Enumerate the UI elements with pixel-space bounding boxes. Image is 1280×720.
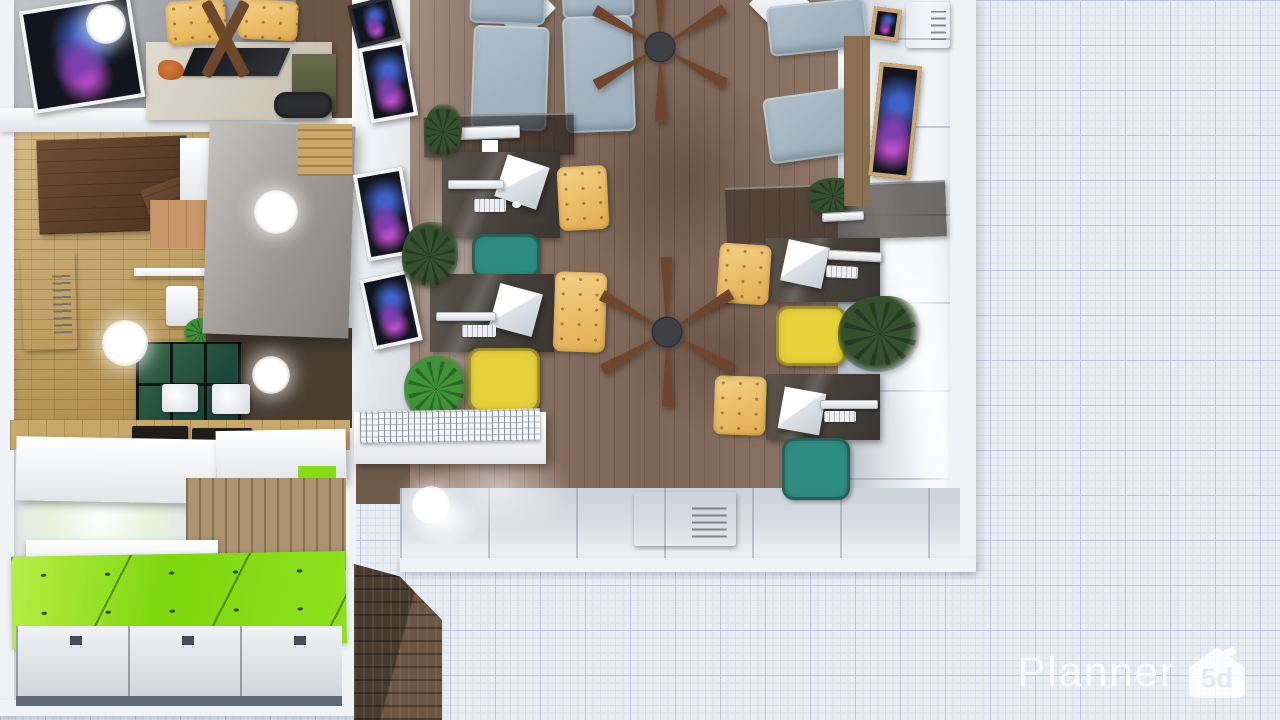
ac-unit[interactable] (906, 2, 950, 48)
glass-shelf (134, 268, 212, 276)
monitor[interactable] (448, 180, 504, 189)
keyboard[interactable] (824, 411, 856, 422)
ceiling-fan[interactable] (592, 257, 742, 407)
wall-picture[interactable] (358, 40, 418, 123)
ceiling-light (86, 4, 126, 44)
keyboard[interactable] (474, 199, 506, 212)
wall-picture[interactable] (347, 0, 400, 49)
wall-picture[interactable] (870, 6, 902, 42)
ceiling-light (412, 486, 450, 524)
palm-plant[interactable] (838, 296, 922, 372)
ceiling-light (252, 356, 290, 394)
wall-picture[interactable] (19, 0, 146, 114)
brand-wordmark: Planner (1017, 648, 1176, 696)
monitor[interactable] (458, 125, 520, 140)
locker-fronts[interactable] (16, 626, 342, 706)
badge-text: 5d (1201, 663, 1234, 694)
desk-chair[interactable] (274, 92, 332, 118)
office-chair[interactable] (782, 438, 850, 500)
planner-5d-house-badge: 5d (1186, 644, 1248, 700)
pc-tower[interactable] (780, 239, 830, 289)
ceiling-light (102, 320, 148, 366)
kitchen-board (150, 200, 208, 248)
furniture-layer (0, 0, 1280, 720)
planner5d-3d-viewport[interactable]: Planner 5d (0, 0, 1280, 720)
wood-slats (844, 36, 870, 206)
wood-chair[interactable] (556, 165, 609, 232)
monitor[interactable] (436, 312, 496, 321)
ac-unit[interactable] (20, 251, 77, 351)
wood-chair[interactable] (713, 375, 767, 436)
planner5d-watermark: Planner 5d (1017, 644, 1248, 700)
monitor[interactable] (820, 400, 878, 409)
wall-picture[interactable] (868, 62, 922, 180)
keyboard[interactable] (462, 325, 496, 337)
keyboard[interactable] (826, 265, 859, 279)
table-cross-legs[interactable] (176, 0, 272, 78)
ac-floor-unit[interactable] (634, 492, 736, 546)
bench-grate (360, 408, 541, 443)
wood-beam (298, 124, 352, 176)
mug[interactable] (162, 384, 198, 412)
mug[interactable] (212, 384, 250, 414)
mouse[interactable] (512, 201, 521, 208)
office-chair[interactable] (472, 234, 540, 278)
pc-tower[interactable] (778, 387, 827, 436)
lounge-armchair[interactable] (469, 0, 547, 25)
office-chair[interactable] (468, 348, 540, 412)
ceiling-light (254, 190, 298, 234)
office-chair[interactable] (776, 306, 846, 366)
